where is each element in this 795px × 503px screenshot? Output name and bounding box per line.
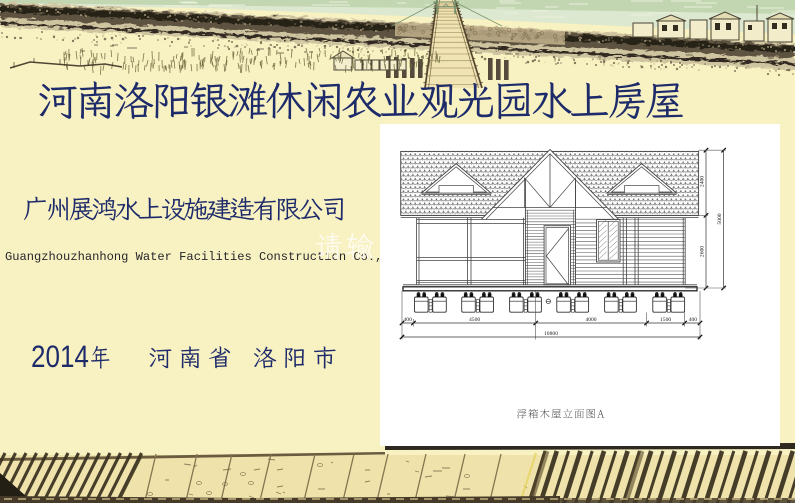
svg-text:400: 400 (689, 317, 698, 323)
svg-text:4000: 4000 (585, 317, 596, 323)
svg-text:10800: 10800 (544, 331, 558, 337)
svg-text:2400: 2400 (699, 176, 705, 187)
svg-text:1500: 1500 (660, 317, 671, 323)
svg-text:4500: 4500 (469, 317, 480, 323)
svg-text:2600: 2600 (699, 246, 705, 257)
svg-text:5000: 5000 (717, 213, 723, 224)
svg-text:400: 400 (404, 317, 413, 323)
